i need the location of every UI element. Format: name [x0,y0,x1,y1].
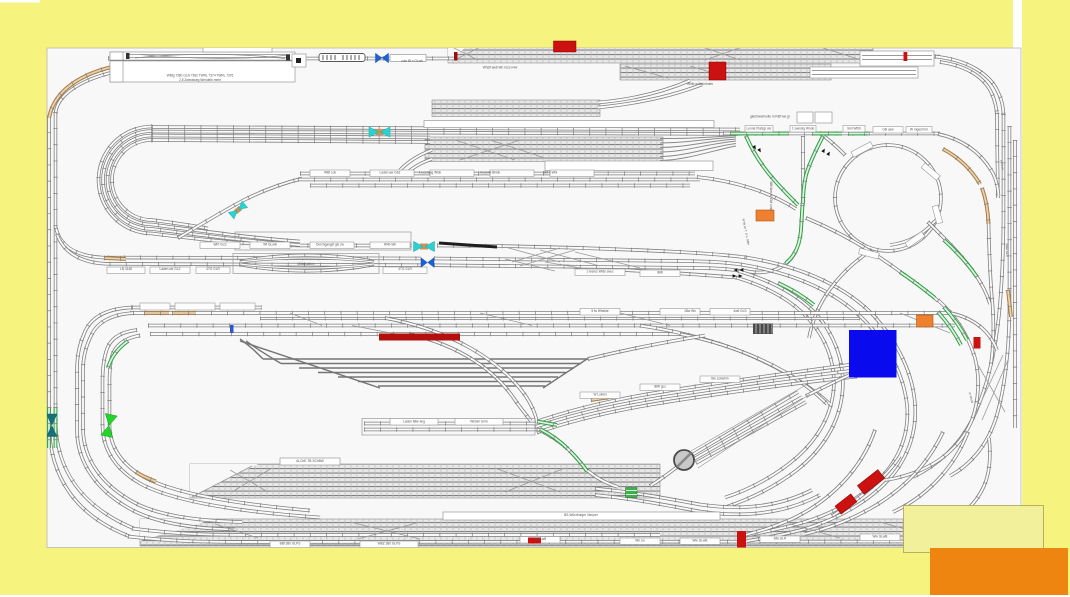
svg-text:WBfg 7380 GLN 7382 TWRL 7374 T: WBfg 7380 GLN 7382 TWRL 7374 TWRL 7376 [167,74,234,78]
svg-text:1 zweckg Wndo: 1 zweckg Wndo [792,126,815,130]
svg-text:IBW gLc: IBW gLc [654,385,666,389]
svg-text:Lende Platzgr ver: Lende Platzgr ver [747,126,773,130]
svg-text:Wf GLwB: Wf GLwB [263,242,276,246]
svg-text:1 Leeraug Wlok: 1 Leeraug Wlok [419,171,442,175]
svg-text:Bfw GLR: Bfw GLR [774,537,787,541]
svg-text:SBf über d. Gbf umw: SBf über d. Gbf umw [769,181,773,211]
svg-text:Wk Lw: Wk Lw [635,539,645,543]
svg-text:4w6 GLS: 4w6 GLS [733,309,746,313]
svg-text:Laden Bilw ang: Laden Bilw ang [403,419,425,423]
svg-text:2,5 Zweckweg Wendelb mehr: 2,5 Zweckweg Wendelb mehr [179,78,222,82]
svg-text:Laden aw GbZ: Laden aw GbZ [380,171,401,175]
svg-text:Ww GLwB: Ww GLwB [873,535,888,539]
svg-text:WBw GLb: WBw GLb [1005,243,1009,257]
svg-text:1Bw Wn: 1Bw Wn [684,309,696,313]
svg-text:Whstf aw6 Wn GLS n4w: Whstf aw6 Wn GLS n4w [483,66,518,70]
svg-text:5 lw Whstde: 5 lw Whstde [591,309,609,313]
svg-text:Sml Wfstr: Sml Wfstr [847,126,862,130]
svg-text:Ww GLwB: Ww GLwB [693,539,708,543]
svg-text:4TG GLR: 4TG GLR [398,267,412,271]
svg-text:Whstm Umn: Whstm Umn [470,419,488,423]
svg-text:LB 4148: LB 4148 [120,267,132,271]
svg-text:IBW: IBW [657,270,663,274]
svg-text:Gbf n Whl: Gbf n Whl [543,171,557,175]
svg-text:Whtb w Bahnhofm: Whtb w Bahnhofm [687,82,713,86]
svg-text:4TG GLR: 4TG GLR [206,267,220,271]
svg-text:ALChE-TB-SChBW: ALChE-TB-SChBW [296,459,324,463]
svg-text:W Lokwn: W Lokwn [593,393,606,397]
svg-text:W mgest hm: W mgest hm [910,127,928,131]
svg-text:Mittelstation: Mittelstation [297,262,314,266]
svg-text:n Leerw Bhlok: n Leerw Bhlok [480,171,501,175]
svg-text:Bw Lokwhm: Bw Lokwhm [711,377,729,381]
svg-text:Whf GLS: Whf GLS [214,242,227,246]
svg-text:gleichwertvolle m RBf ww gr: gleichwertvolle m RBf ww gr [750,115,791,119]
svg-text:BS-Würzburgm Vkmper: BS-Würzburgm Vkmper [564,513,599,517]
svg-text:Bf GLwB: Bf GLwB [534,537,547,541]
svg-text:zum Bf n GLwb: zum Bf n GLwb [401,59,423,63]
svg-text:GB usw: GB usw [882,127,894,131]
svg-text:WBZ 380 GLPS: WBZ 380 GLPS [378,542,401,546]
svg-text:Laden wir GLZ: Laden wir GLZ [160,267,181,271]
svg-text:BBf 380 GLPS: BBf 380 GLPS [280,542,301,546]
svg-text:WBf Lok: WBf Lok [324,171,336,175]
svg-text:Durchgangsf gls zw: Durchgangsf gls zw [316,242,345,246]
svg-text:W4b Wn: W4b Wn [384,242,396,246]
svg-text:1 leeres Wide avec: 1 leeres Wide avec [586,269,614,273]
